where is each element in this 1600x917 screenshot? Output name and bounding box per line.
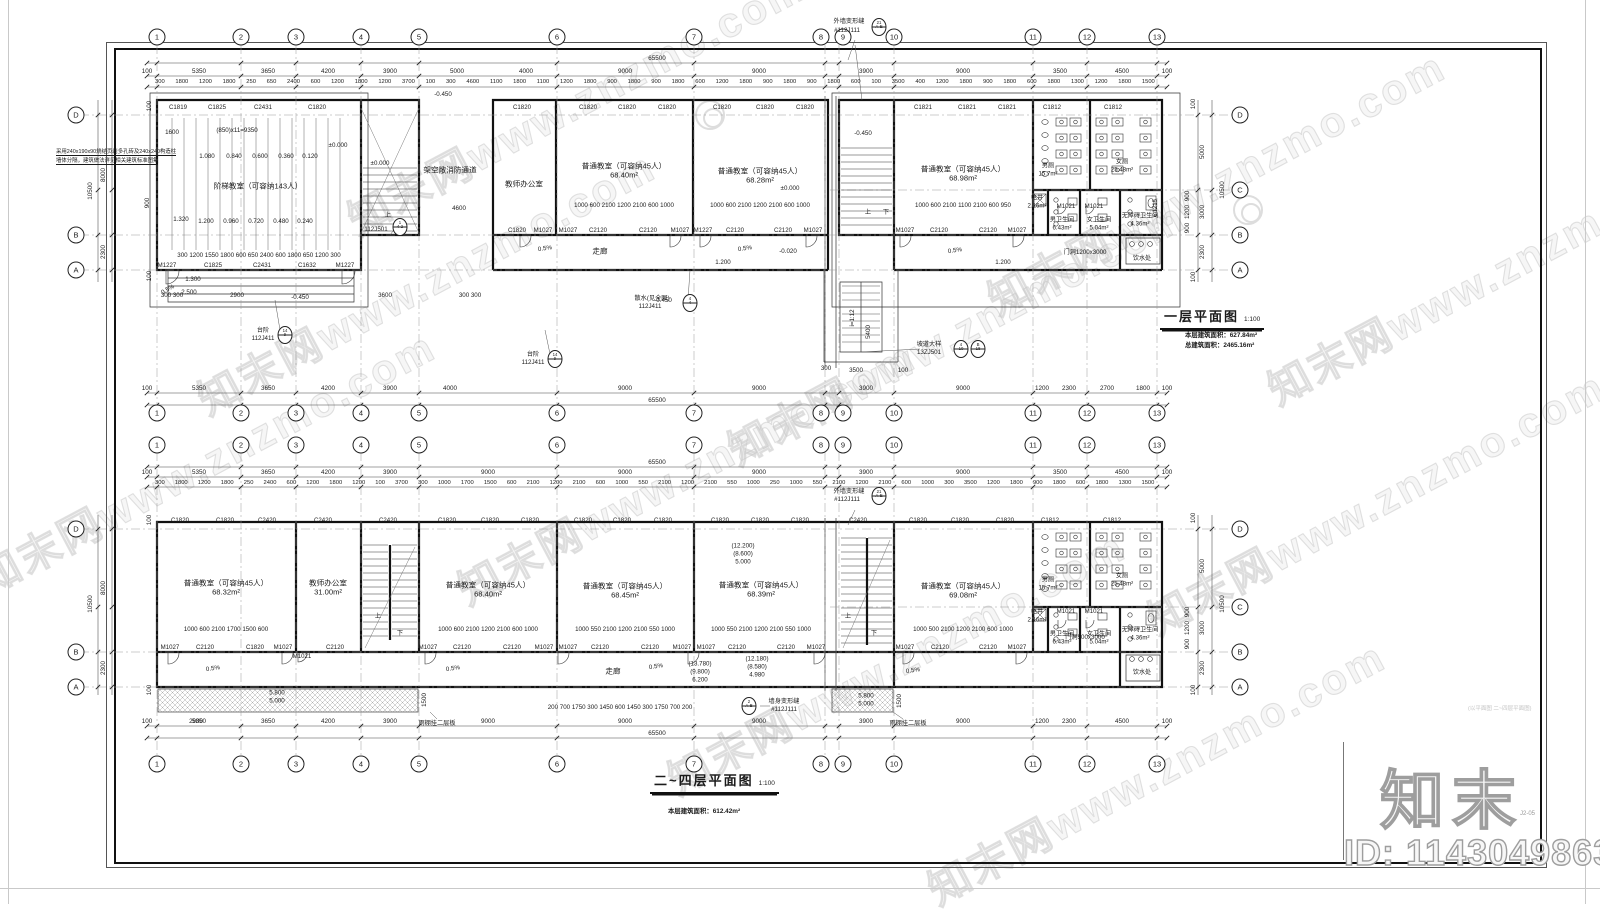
fixture	[1056, 581, 1067, 589]
dimension-label: 1000	[615, 480, 628, 486]
annotation: 散水(见全图)	[634, 295, 669, 303]
dimension-label: 100	[146, 101, 154, 112]
annotation: 外墙变形缝	[834, 488, 865, 496]
dimension-label: 65500	[648, 397, 666, 405]
axis-bubble: 2	[233, 756, 250, 773]
annotation: 112J501	[364, 226, 387, 234]
room-label: 走廊	[592, 246, 607, 255]
window-door-tag: C2120	[591, 644, 609, 652]
plan1-area-note1: 本层建筑面积：627.84m²	[1185, 330, 1257, 339]
dimension-label: 1800	[1003, 79, 1016, 85]
window-door-tag: 男厕 15.7m²	[1039, 576, 1058, 591]
fixture	[1130, 242, 1135, 247]
fixture	[1148, 657, 1153, 662]
fixture	[1112, 150, 1123, 158]
fixture	[1144, 152, 1148, 156]
fixture	[1144, 551, 1148, 555]
window-door-tag: C1820	[756, 104, 774, 112]
annotation: 200 700 1750 300 1450 600 1450 300 1750 …	[548, 704, 693, 712]
room-label: 普通教室（可容纳45人） 68.39m²	[719, 581, 803, 600]
dimension-label: 5000	[1199, 145, 1207, 159]
axis-bubble: 5	[411, 29, 428, 46]
annotation: 上	[865, 209, 871, 217]
window-door-tag: C1820	[791, 517, 809, 525]
dimension-label: 2100	[704, 480, 717, 486]
dimension-label: 900	[807, 79, 817, 85]
dimension-label: 1500	[484, 480, 497, 486]
dimension-label: 1800	[1053, 480, 1066, 486]
dimension-label: 9000	[618, 469, 632, 477]
dimension-label: 3650	[261, 718, 275, 726]
fixture	[1116, 567, 1120, 571]
axis-bubble: 6	[549, 756, 566, 773]
window-door-tag: C1820	[713, 104, 731, 112]
axis-bubble: 5	[411, 405, 428, 422]
dimension-label: 2300	[1199, 661, 1207, 675]
dimension-label: 100	[146, 515, 154, 526]
window-door-tag: M1027	[896, 644, 915, 652]
plan2-title-text: 二~四层平面图	[654, 770, 754, 789]
window-door-tag: C1825	[204, 262, 222, 270]
dimension-label: 4200	[321, 469, 335, 477]
dimension-label: 5350	[192, 385, 206, 393]
dimension-label: 100	[1190, 513, 1198, 524]
dimension-label: 1000	[921, 480, 934, 486]
wall-note-line1: 采用240x190x90烧结页岩多孔砖及240x240构造柱	[56, 147, 176, 156]
axis-bubble: 8	[813, 405, 830, 422]
window-door-tag: M1027	[671, 227, 690, 235]
fixture	[1096, 150, 1107, 158]
dimension-label: 600	[1027, 79, 1037, 85]
axis-bubble: B	[68, 644, 85, 661]
axis-bubble: 5	[411, 756, 428, 773]
annotation: 1000 600 2100 1100 2100 600 950	[915, 202, 1011, 210]
fixture	[1070, 533, 1081, 541]
fixture	[1042, 561, 1048, 566]
dimension-label: 9000	[481, 469, 495, 477]
dimension-label: 1200	[716, 79, 729, 85]
axis-bubble: 8	[813, 756, 830, 773]
window-door-tag: M1021	[1085, 203, 1104, 211]
axis-bubble: 1	[149, 29, 166, 46]
dimension-label: 1200	[1184, 205, 1192, 219]
axis-bubble: 3	[288, 756, 305, 773]
annotation: (12.200) (8.600) 5.000	[731, 542, 754, 565]
dimension-label: 5000	[1199, 559, 1207, 573]
fixture	[1056, 118, 1067, 126]
dimension-label: 400	[915, 79, 925, 85]
annotation: 1000 600 2100 1200 2100 600 1000	[574, 202, 674, 210]
dimension-label: 1000	[747, 480, 760, 486]
window-door-tag: C1820	[481, 517, 499, 525]
axis-bubble: 2	[233, 405, 250, 422]
fixture	[1096, 565, 1107, 573]
axis-bubble: A	[68, 262, 85, 279]
annotation: #112J111	[771, 706, 797, 714]
fixture	[1100, 168, 1104, 172]
dimension-label: 1100	[537, 79, 549, 85]
dimension-label: 300	[155, 79, 165, 85]
annotation: (13.780) (9.800) 6.200	[688, 660, 711, 683]
detail-bubble: 2 A-B	[742, 697, 757, 715]
dimension-label: 10500	[1219, 595, 1227, 613]
axis-bubble: 13	[1149, 437, 1166, 454]
fixture	[1139, 242, 1144, 247]
fixture	[1056, 166, 1067, 174]
fixture	[1074, 136, 1078, 140]
dimension-label: 3900	[859, 718, 873, 726]
dimension-label: 2100	[832, 480, 845, 486]
fixture	[1116, 152, 1120, 156]
room-label: 普通教室（可容纳45人） 68.40m²	[446, 581, 530, 600]
window-door-tag: C1820	[613, 517, 631, 525]
annotation: 0.840	[226, 153, 241, 161]
cad-path	[342, 271, 355, 284]
axis-bubble: 10	[886, 756, 903, 773]
dimension-label: 1800	[355, 79, 368, 85]
window-door-tag: 女厕 25.48m²	[1111, 158, 1133, 173]
detail-bubble: 14 9	[278, 326, 293, 344]
annotation: 上	[845, 613, 851, 621]
dimension-label: 1800	[513, 79, 526, 85]
dimension-label: 10500	[87, 595, 95, 613]
dimension-label: 65500	[648, 55, 666, 63]
thin-lines	[150, 93, 1180, 691]
fixture	[1074, 551, 1078, 555]
axis-bubble: 13	[1149, 405, 1166, 422]
window-door-tag: 男卫生间 6.43m²	[1050, 216, 1074, 231]
fixture	[1140, 533, 1151, 541]
fixture	[1054, 198, 1058, 202]
fixture	[1074, 168, 1078, 172]
annotation: 上	[385, 212, 391, 220]
axis-bubble: 4	[353, 29, 370, 46]
annotation: 300 300	[161, 292, 183, 300]
fixture	[1140, 118, 1151, 126]
annotation: (12.180) (8.580) 4.980	[745, 655, 768, 678]
dimension-label: 9000	[618, 718, 632, 726]
window-door-tag: M1027	[697, 644, 716, 652]
dimension-label: 100	[1162, 385, 1173, 393]
window-door-tag: M1027	[161, 644, 180, 652]
dimension-label: 100	[142, 68, 153, 76]
fixture	[1060, 152, 1064, 156]
fixture	[1060, 535, 1064, 539]
dimension-label: 4200	[321, 385, 335, 393]
window-door-tag: C2120	[728, 644, 746, 652]
annotation: -0.450	[434, 91, 452, 99]
fixture	[1056, 549, 1067, 557]
dimension-label: 9000	[752, 469, 766, 477]
axis-bubble: 11	[1025, 405, 1042, 422]
axis-bubble: 8	[813, 437, 830, 454]
dimension-label: 3500	[1053, 68, 1067, 76]
dimension-label: 4500	[1115, 718, 1129, 726]
dimension-label: 900	[1184, 191, 1192, 202]
dimension-label: 2100	[878, 480, 891, 486]
fixture	[1116, 136, 1120, 140]
dimension-label: 9000	[956, 469, 970, 477]
cad-path	[520, 236, 531, 247]
annotation: ±0.000	[329, 142, 348, 150]
cad-path	[1016, 653, 1027, 664]
canopy-hatch	[158, 689, 418, 712]
annotation: 300 300	[459, 292, 481, 300]
annotation: 1500	[421, 693, 429, 707]
annotation: #112J111	[834, 496, 860, 504]
annotation: 上	[375, 613, 381, 621]
fixture	[1042, 133, 1048, 138]
window-door-tag: C2120	[196, 644, 214, 652]
axis-bubble: C	[1232, 182, 1249, 199]
cad-path	[700, 236, 711, 247]
window-door-tag: 男厕 15.7m²	[1039, 162, 1058, 177]
axis-bubble: 12	[1079, 756, 1096, 773]
dimension-label: 3650	[261, 385, 275, 393]
dimension-label: 1500	[1142, 79, 1155, 85]
dimension-label: 100	[142, 718, 153, 726]
annotation: 1500	[896, 694, 904, 708]
fixture	[1140, 134, 1151, 142]
window-door-tag: 饮水处	[1133, 255, 1151, 263]
fixture	[1112, 533, 1123, 541]
window-door-tag: C1812	[1041, 517, 1059, 525]
fixture	[1042, 535, 1048, 540]
dimension-label: 8000	[100, 581, 108, 595]
dimension-label: 4200	[321, 68, 335, 76]
dimension-label: 100	[1162, 68, 1173, 76]
dimension-label: 1000	[438, 480, 451, 486]
axis-bubble: 8	[813, 29, 830, 46]
dimension-label: 4000	[443, 385, 457, 393]
dimension-label: 1000	[790, 480, 803, 486]
dimension-label: 4600	[466, 79, 479, 85]
window-door-tag: C2120	[930, 227, 948, 235]
axis-bubble: 6	[549, 405, 566, 422]
dimension-label: 550	[813, 480, 823, 486]
room-label: 普通教室（可容纳45人） 68.40m²	[582, 162, 666, 181]
annotation: 100	[898, 367, 908, 375]
dimension-label: 100	[1162, 469, 1173, 477]
plan1-walls	[157, 100, 1162, 270]
fixture	[1096, 134, 1107, 142]
dimension-label: 9000	[956, 385, 970, 393]
dimension-label: 1800	[739, 79, 752, 85]
fixture	[1146, 611, 1156, 625]
dimension-label: 600	[287, 480, 297, 486]
axis-bubble: B	[1232, 644, 1249, 661]
dimension-label: 3900	[859, 68, 873, 76]
annotation: 2900	[230, 292, 244, 300]
fixture	[1056, 533, 1067, 541]
dimension-label: 1200	[199, 79, 212, 85]
axis-bubble: 9	[835, 756, 852, 773]
fixture	[1144, 120, 1148, 124]
annotation: 13ZJ501	[917, 349, 941, 357]
dimension-label: 900	[651, 79, 661, 85]
window-door-tag: C2420	[379, 517, 397, 525]
annotation: 1600	[165, 129, 179, 137]
dimension-label: 3650	[261, 469, 275, 477]
window-door-tag: C1820	[508, 227, 526, 235]
axis-bubble: 12	[1079, 437, 1096, 454]
dimension-label: 550	[727, 480, 737, 486]
window-door-tag: M1027	[559, 644, 578, 652]
cad-path	[670, 236, 681, 247]
dimension-label: 3900	[383, 68, 397, 76]
cad-path	[1058, 620, 1066, 628]
annotation: 5400	[865, 325, 873, 339]
fixture	[1116, 551, 1120, 555]
dimension-label: 100	[1190, 272, 1198, 283]
fixture	[1112, 134, 1123, 142]
annotation: 1000 600 2100 1700 1500 600	[184, 626, 268, 634]
window-door-tag: C1820	[996, 517, 1014, 525]
annotation: 0.600	[252, 153, 267, 161]
dimension-label: 1700	[461, 480, 474, 486]
fixture	[1100, 583, 1104, 587]
dimension-label: 9000	[752, 68, 766, 76]
dimension-label: 600	[695, 79, 705, 85]
annotation: 1.300	[185, 276, 200, 284]
annotation: -0.450	[854, 130, 872, 138]
dimension-label: 1200	[306, 480, 319, 486]
plan2-title-scale: 1:100	[759, 780, 775, 787]
room-label: 普通教室（可容纳45人） 68.32m²	[184, 579, 268, 598]
dimension-label: 3900	[383, 385, 397, 393]
fixture	[1100, 152, 1104, 156]
dimension-label: 10500	[1219, 181, 1227, 199]
axis-bubble: 4	[353, 756, 370, 773]
axis-bubble: A	[1232, 262, 1249, 279]
fixture	[1140, 581, 1151, 589]
dimension-label: 2700	[1100, 385, 1114, 393]
dimension-label: 9000	[618, 385, 632, 393]
annotation: 3500	[849, 367, 863, 375]
window-door-tag: M1021	[293, 653, 312, 661]
dimension-label: 100	[871, 79, 881, 85]
window-door-tag: C2420	[849, 517, 867, 525]
fixture	[1074, 152, 1078, 156]
dimension-label: 1800	[1118, 79, 1131, 85]
annotation: 5.800 5.000	[269, 689, 284, 705]
window-door-tag: M1021	[1057, 203, 1076, 211]
axis-bubble: 1	[149, 437, 166, 454]
dimension-label: 600	[507, 480, 517, 486]
dimension-label: 1500	[1141, 480, 1154, 486]
window-door-tag: 饮水处	[1133, 669, 1151, 677]
faint-reference-note: (以平面图 二~四层平面图)	[1468, 704, 1531, 712]
dimension-label: 300	[944, 480, 954, 486]
axis-bubble: 7	[686, 437, 703, 454]
dimension-label: 1800	[959, 79, 972, 85]
fixture	[1139, 657, 1144, 662]
dimension-label: 2400	[287, 79, 300, 85]
drawing-canvas: 知末网www.znzmo.com 知末网www.znzmo.com 知末网www…	[0, 0, 1600, 904]
fixture	[1074, 120, 1078, 124]
dimension-label: 5350	[192, 68, 206, 76]
annotation: (850)x11=9350	[216, 127, 257, 135]
fixture	[1060, 551, 1064, 555]
fixture	[1096, 581, 1107, 589]
dimension-label: 250	[770, 480, 780, 486]
annotation: 112J411	[522, 359, 545, 367]
cad-path	[168, 653, 179, 664]
annotation: 112J411	[639, 303, 662, 311]
fixture	[1070, 118, 1081, 126]
dimension-label: 900	[1184, 223, 1192, 234]
annotation: 1000 550 2100 1200 2100 550 1000	[575, 626, 675, 634]
plan2-area-note1: 本层建筑面积：612.42m²	[668, 806, 740, 815]
window-door-tag: C1820	[216, 517, 234, 525]
fixture	[1112, 549, 1123, 557]
dimension-label: 100	[1190, 685, 1198, 696]
dimension-label: 4500	[1115, 469, 1129, 477]
fixture	[1100, 551, 1104, 555]
brand-logo: 知末	[1380, 750, 1524, 842]
fixture	[1128, 613, 1132, 617]
window-door-tag: C2120	[503, 644, 521, 652]
annotation: 300 1200 1550 1800 600 650 2400 600 1800…	[177, 252, 340, 260]
room-label: 普通教室（可容纳45人） 68.28m²	[718, 167, 802, 186]
window-door-tag: C1820	[618, 104, 636, 112]
fixture	[1060, 583, 1064, 587]
dimension-label: 1300	[1071, 79, 1084, 85]
fixture	[1140, 549, 1151, 557]
dimension-label: 900	[1184, 639, 1192, 650]
window-door-tag: M1027	[274, 644, 293, 652]
fixture	[1060, 168, 1064, 172]
annotation: 1.200	[715, 259, 730, 267]
annotation: 外墙变形缝	[834, 18, 865, 26]
dimension-label: 900	[983, 79, 993, 85]
dimension-label: 100	[146, 271, 154, 282]
detail-bubble: 21 A-E	[872, 18, 887, 36]
dimension-label: 600	[596, 480, 606, 486]
annotation: 0.480	[273, 218, 288, 226]
window-door-tag: C1820	[711, 517, 729, 525]
plan1-detail-dims: 3001800120018002506502400600120018001200…	[157, 79, 1157, 85]
axis-bubble: D	[1232, 521, 1249, 538]
fixture	[1070, 166, 1081, 174]
dimension-label: 3500	[1053, 469, 1067, 477]
annotation: 下	[397, 630, 403, 638]
window-door-tag: M1227	[336, 262, 355, 270]
dimension-label: 9000	[956, 718, 970, 726]
annotation: 2.500	[181, 289, 196, 297]
dimension-label: 4200	[321, 718, 335, 726]
fixture	[1074, 535, 1078, 539]
window-door-tag: C1820	[658, 104, 676, 112]
window-door-tag: M1027	[1008, 227, 1027, 235]
window-door-tag: C1820	[654, 517, 672, 525]
dimension-label: 100	[142, 385, 153, 393]
axis-bubble: 3	[288, 29, 305, 46]
window-door-tag: C2431	[253, 262, 271, 270]
axis-bubble: 11	[1025, 29, 1042, 46]
dimension-label: 600	[1076, 480, 1086, 486]
axis-bubble: 11	[1025, 437, 1042, 454]
detail-bubble: 14 9	[548, 350, 563, 368]
axis-bubble: 1	[149, 405, 166, 422]
dimension-label: 1200	[1095, 79, 1108, 85]
dimension-label: 1800	[783, 79, 796, 85]
window-door-tag: C2120	[777, 644, 795, 652]
dimension-label: 3000	[1199, 621, 1207, 635]
window-door-tag: C1820	[796, 104, 814, 112]
dimension-label: 1200	[550, 480, 563, 486]
dimension-label: 1800	[329, 480, 342, 486]
